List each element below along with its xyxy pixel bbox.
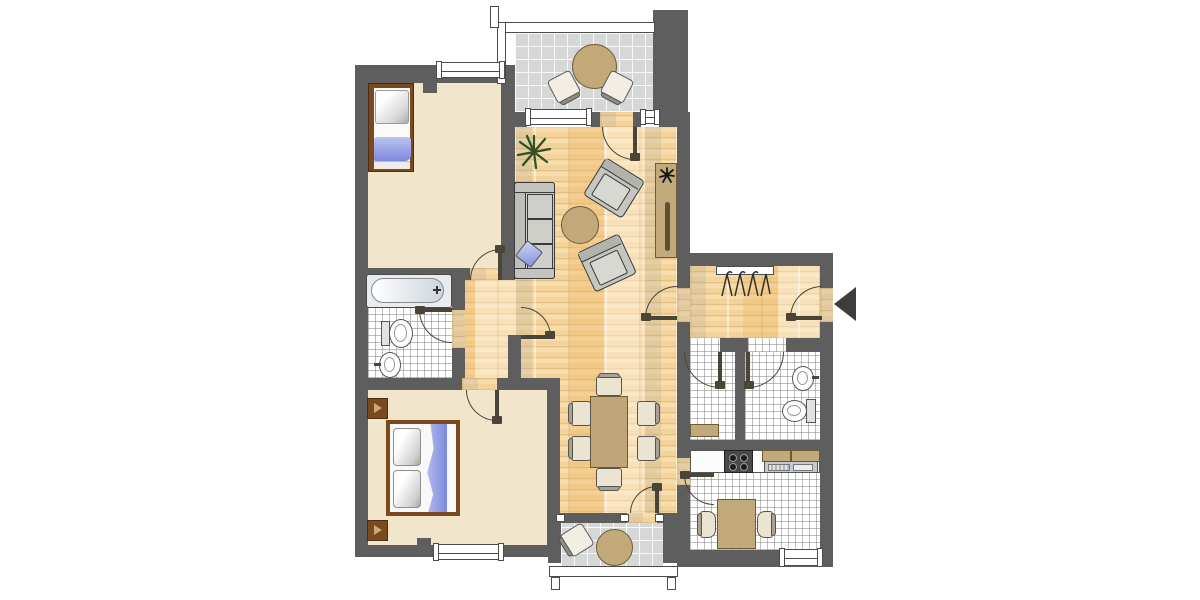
dining-chair-left-1 — [571, 401, 591, 426]
dining-chair-right-1 — [637, 401, 657, 426]
toilet-tank-wc — [806, 399, 816, 423]
door-cap-kitchen — [680, 471, 690, 479]
bed-blanket — [374, 137, 411, 161]
wall-bedroom1-bottom-corner — [501, 268, 515, 280]
sofa-cushion-2 — [527, 219, 553, 244]
wall-balcony-bottom-right — [663, 518, 680, 563]
door-cap-wc — [744, 381, 754, 389]
single-bed — [368, 83, 414, 172]
door-cap-storage — [715, 381, 725, 389]
threshold-storage-door — [690, 338, 720, 352]
wall-right-upper — [820, 253, 833, 288]
washbasin-wc — [792, 366, 814, 391]
chair-back — [655, 403, 660, 424]
door-cap-bedroom2 — [492, 416, 502, 424]
railing-post-top — [490, 6, 499, 28]
wall-balcony-top-block — [653, 10, 688, 112]
wall-storage-wc-divider — [735, 352, 745, 450]
bed2-pillow-2 — [393, 470, 421, 508]
storage-shelf — [690, 424, 719, 437]
wall-corridor-stub — [508, 335, 521, 390]
coat-rack-hangers — [719, 270, 771, 298]
star-plant-icon — [659, 167, 675, 183]
railing-balcony-bottom — [549, 566, 678, 577]
kitchen-sink — [764, 461, 818, 473]
wall-bathroom-right-upper — [452, 275, 465, 310]
floorplan — [0, 0, 1200, 600]
window-living-top-left — [526, 109, 591, 125]
sofa-arm-bottom — [514, 268, 555, 279]
window-bedroom1-top — [437, 62, 504, 78]
door-cap-balcony-top — [630, 153, 640, 161]
doorframe-post-2 — [620, 514, 629, 522]
burner — [729, 463, 737, 471]
door-cap-entrance — [786, 313, 796, 321]
wall-storage-wc-top-seg1 — [720, 338, 748, 352]
sofa-cushion-1 — [527, 194, 553, 219]
dining-chair-right-2 — [637, 436, 657, 461]
toilet-wc-inner — [787, 405, 801, 416]
door-cap-bedroom1 — [495, 245, 505, 253]
toilet-wc — [782, 400, 807, 422]
chair-back — [771, 513, 776, 536]
washbasin-inner — [384, 357, 395, 372]
cabinet-triangle-icon — [374, 525, 382, 535]
railing-post-bottom-left — [551, 577, 560, 590]
stove — [724, 450, 753, 473]
bathtub — [366, 274, 452, 308]
bedside-cabinet-2 — [367, 520, 388, 541]
balcony-bottom-table — [596, 529, 633, 566]
burner — [729, 454, 737, 462]
railing-post-bottom-right — [667, 577, 676, 590]
threshold-bathroom-door — [452, 310, 465, 348]
floor-plant — [516, 134, 552, 170]
chair-back — [598, 486, 620, 491]
wall-living-top-seg2 — [591, 112, 600, 127]
threshold-balcony-top-door — [600, 112, 633, 127]
washbasin-wc-tap-icon — [812, 376, 819, 379]
threshold-living-hall-door — [677, 288, 690, 322]
entrance-arrow-icon — [834, 287, 856, 321]
wall-living-right — [677, 112, 690, 253]
door-cap-balcony-bottom — [652, 483, 662, 491]
double-bed — [386, 420, 460, 516]
kitchen-chair-left — [700, 511, 716, 538]
sofa — [514, 182, 555, 279]
coffee-table — [561, 206, 599, 244]
wall-left-outer — [355, 65, 368, 557]
wall-notch-bedroom1 — [423, 83, 437, 93]
railing-balcony-top — [497, 22, 655, 33]
sink-basin — [793, 464, 813, 471]
kitchen-chair-right — [757, 511, 773, 538]
door-leaf-bedroom1 — [498, 249, 502, 280]
sideboard-slot — [665, 202, 670, 251]
sofa-backrest — [514, 182, 526, 279]
bathtub-tap-dot — [436, 286, 438, 294]
toilet-bathroom — [389, 319, 413, 348]
wall-hall-left — [677, 266, 690, 288]
window-living-top-right — [641, 110, 659, 124]
sideboard-plant — [659, 167, 675, 183]
wall-bedroom2-top-left — [355, 378, 462, 390]
burner — [740, 463, 748, 471]
bed2-pillow-1 — [393, 428, 421, 466]
hangers-icon — [719, 270, 771, 298]
chair-back — [598, 373, 620, 378]
bed2-blanket — [424, 424, 447, 512]
burner — [740, 454, 748, 462]
doorframe-post-3 — [655, 514, 664, 522]
sink-drainer — [768, 464, 790, 471]
dining-table — [590, 396, 628, 468]
sofa-arm-top — [514, 182, 555, 193]
washbasin-wc-inner — [797, 371, 808, 385]
dining-chair-top — [596, 376, 622, 396]
washbasin-tap-icon — [374, 363, 381, 366]
threshold-bedroom2-door — [462, 378, 497, 390]
threshold-balcony-bottom-door — [627, 513, 657, 523]
wall-right-lower — [820, 322, 833, 567]
door-cap-bathroom — [415, 306, 425, 314]
dining-chair-left-2 — [571, 436, 591, 461]
wall-notch-bedroom2 — [417, 538, 431, 547]
chair-back — [568, 403, 573, 424]
bedside-cabinet-1 — [367, 398, 388, 419]
chair-back — [568, 438, 573, 459]
wall-hall-top — [677, 253, 833, 266]
cabinet-triangle-icon — [374, 403, 382, 413]
washbasin-bathroom — [379, 352, 401, 378]
toilet-bowl-inner — [394, 324, 407, 342]
door-cap-corridor — [545, 331, 555, 339]
window-kitchen-bottom — [780, 549, 822, 566]
kitchen-table — [717, 499, 756, 549]
wall-storage-wc-bottom — [690, 440, 820, 450]
door-cap-living-hall — [641, 313, 651, 321]
wall-storage-wc-top-seg2 — [786, 338, 820, 352]
window-bedroom2-bottom — [434, 544, 503, 560]
dining-chair-bottom — [596, 468, 622, 488]
bed-pillow — [375, 90, 409, 124]
chair-back — [697, 513, 702, 536]
plant-icon — [516, 134, 552, 170]
wall-mid-right — [677, 322, 690, 458]
chair-back — [655, 438, 660, 459]
bed-foot — [374, 161, 410, 169]
threshold-wc-door — [748, 338, 786, 352]
doorframe-post-1 — [556, 514, 565, 522]
